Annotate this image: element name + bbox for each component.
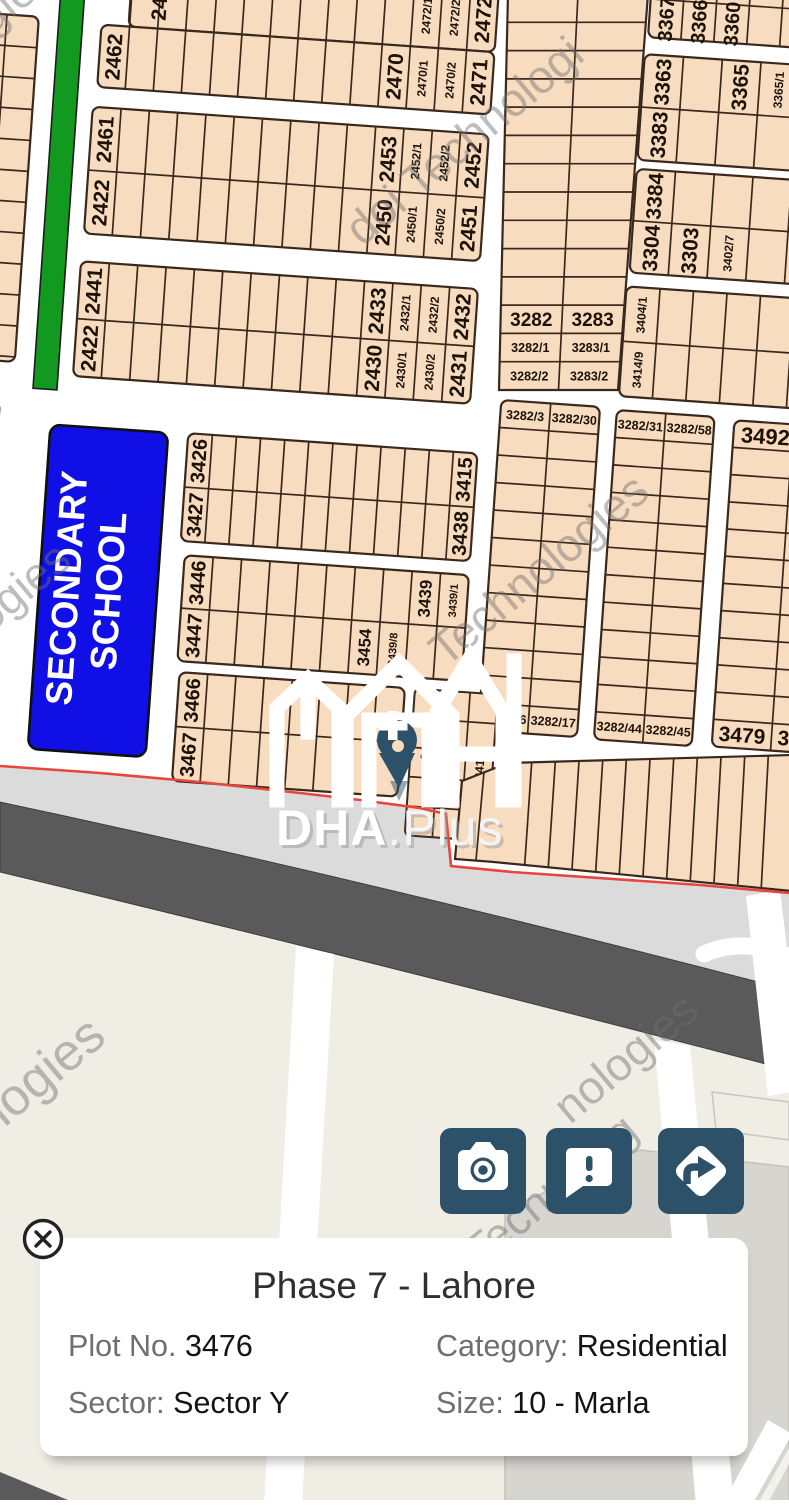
svg-text:3283/1: 3283/1 [572, 341, 610, 355]
svg-text:2470: 2470 [382, 52, 408, 100]
svg-text:3360: 3360 [720, 1, 745, 47]
svg-text:3446: 3446 [186, 560, 211, 606]
svg-text:2470/2: 2470/2 [442, 61, 459, 99]
svg-text:2441: 2441 [81, 267, 107, 316]
svg-text:3367: 3367 [654, 0, 679, 42]
svg-text:2472: 2472 [471, 0, 497, 44]
svg-text:Size: 10 - Marla: Size: 10 - Marla [436, 1386, 650, 1420]
svg-text:3466: 3466 [180, 677, 205, 723]
svg-text:3439: 3439 [414, 579, 436, 618]
svg-text:3427: 3427 [183, 492, 208, 538]
svg-text:2450/2: 2450/2 [432, 207, 449, 245]
svg-text:3414/9: 3414/9 [630, 351, 647, 389]
svg-text:3402/7: 3402/7 [720, 234, 737, 272]
svg-text:3404/1: 3404/1 [633, 296, 650, 334]
svg-text:2470/1: 2470/1 [414, 59, 431, 97]
svg-text:3282/3: 3282/3 [506, 408, 545, 425]
svg-text:2432: 2432 [450, 293, 476, 341]
svg-text:3479: 3479 [718, 723, 766, 749]
svg-text:3283: 3283 [572, 310, 614, 331]
svg-text:3303: 3303 [677, 227, 703, 275]
svg-text:2433: 2433 [365, 287, 391, 335]
svg-text:2463: 2463 [148, 0, 174, 21]
svg-text:Category: Residential: Category: Residential [436, 1329, 728, 1363]
svg-text:3426: 3426 [187, 438, 212, 484]
svg-text:3282/1: 3282/1 [511, 341, 549, 355]
svg-text:2422: 2422 [77, 324, 103, 372]
svg-text:3383: 3383 [647, 111, 673, 159]
svg-text:2430/1: 2430/1 [393, 351, 410, 389]
svg-text:3454: 3454 [354, 627, 376, 667]
svg-text:Phase 7 - Lahore: Phase 7 - Lahore [252, 1265, 536, 1306]
svg-text:2431: 2431 [446, 350, 472, 399]
svg-text:3467: 3467 [177, 732, 202, 778]
svg-text:3447: 3447 [182, 613, 207, 659]
svg-text:DHA.Plus: DHA.Plus [276, 800, 504, 856]
svg-text:3415: 3415 [452, 457, 477, 503]
svg-text:2472/2: 2472/2 [447, 0, 464, 37]
svg-text:2430/2: 2430/2 [422, 353, 439, 391]
svg-text:3282/2: 3282/2 [510, 369, 548, 383]
svg-text:Sector: Sector Y: Sector: Sector Y [68, 1386, 290, 1420]
svg-text:3438: 3438 [448, 510, 473, 556]
svg-text:3384: 3384 [642, 172, 668, 221]
svg-text:3365: 3365 [728, 63, 754, 112]
svg-text:2432/2: 2432/2 [426, 296, 443, 334]
svg-text:2432/1: 2432/1 [397, 294, 414, 332]
svg-text:3541: 3541 [777, 727, 789, 753]
svg-text:3363: 3363 [650, 58, 676, 106]
svg-text:2472/1: 2472/1 [419, 0, 436, 35]
svg-text:3366: 3366 [687, 0, 712, 45]
svg-text:2461: 2461 [93, 115, 119, 164]
svg-text:3283/2: 3283/2 [570, 369, 608, 383]
svg-text:3492: 3492 [740, 422, 789, 450]
svg-text:Plot No. 3476: Plot No. 3476 [68, 1329, 253, 1363]
svg-text:2451: 2451 [456, 204, 482, 253]
svg-text:3365/1: 3365/1 [771, 71, 788, 109]
svg-text:2422: 2422 [88, 179, 114, 227]
svg-text:3304: 3304 [639, 224, 665, 273]
svg-text:2430: 2430 [361, 344, 387, 392]
svg-text:3282: 3282 [510, 310, 552, 331]
svg-text:2462: 2462 [101, 33, 127, 81]
